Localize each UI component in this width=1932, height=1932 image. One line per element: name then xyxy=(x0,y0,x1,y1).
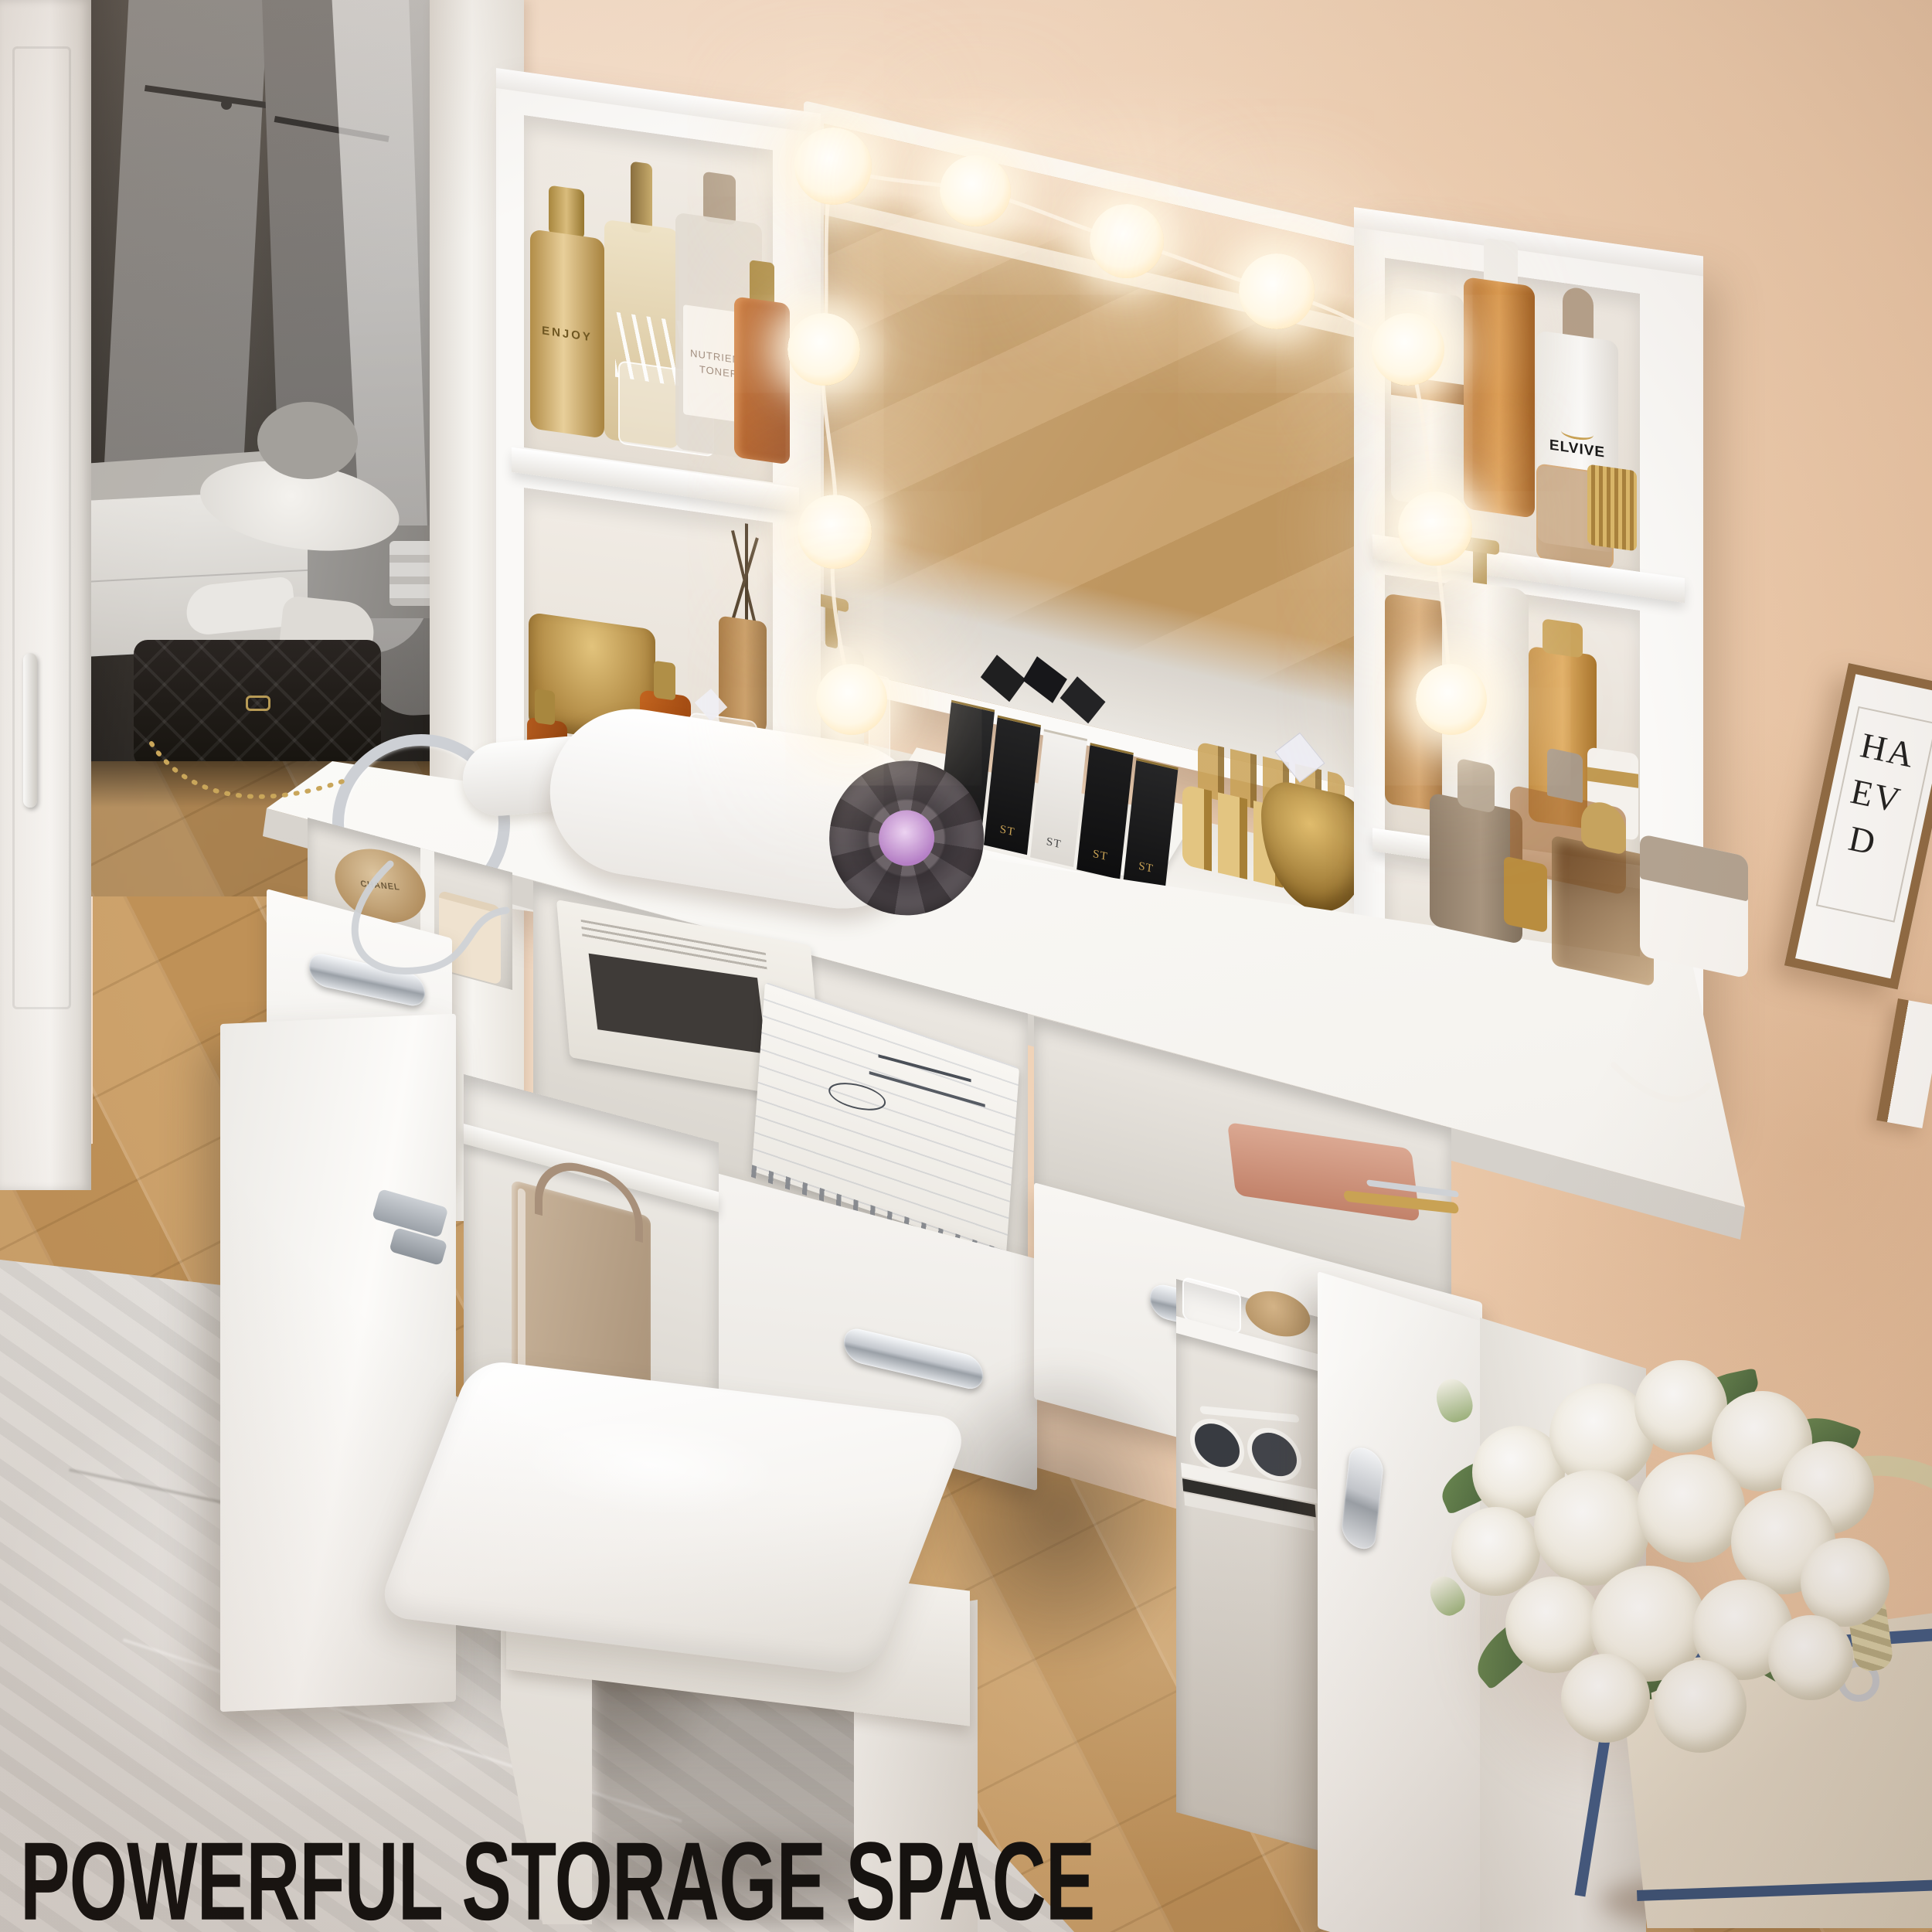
vanity-bulb xyxy=(798,495,872,569)
vanity-bulb xyxy=(1398,492,1472,566)
bedroom-vanity-product-photo: HA EV D xyxy=(0,0,1932,1932)
vanity-bulb xyxy=(1416,664,1487,735)
vanity-bulb xyxy=(940,155,1011,226)
hair-dryer-cord xyxy=(355,864,506,971)
vanity-bulb xyxy=(1239,253,1315,329)
vanity-bulb xyxy=(794,128,872,205)
headline-text: POWERFUL STORAGE SPACE xyxy=(20,1818,1095,1932)
bag-grommet xyxy=(1671,1689,1713,1731)
power-cord xyxy=(1614,1065,1708,1100)
vanity-bulb xyxy=(816,664,887,735)
chain-strap xyxy=(151,743,349,797)
vanity-bulb xyxy=(1090,204,1164,278)
vanity-bulb xyxy=(787,313,860,386)
vanity-bulb xyxy=(1372,313,1444,386)
